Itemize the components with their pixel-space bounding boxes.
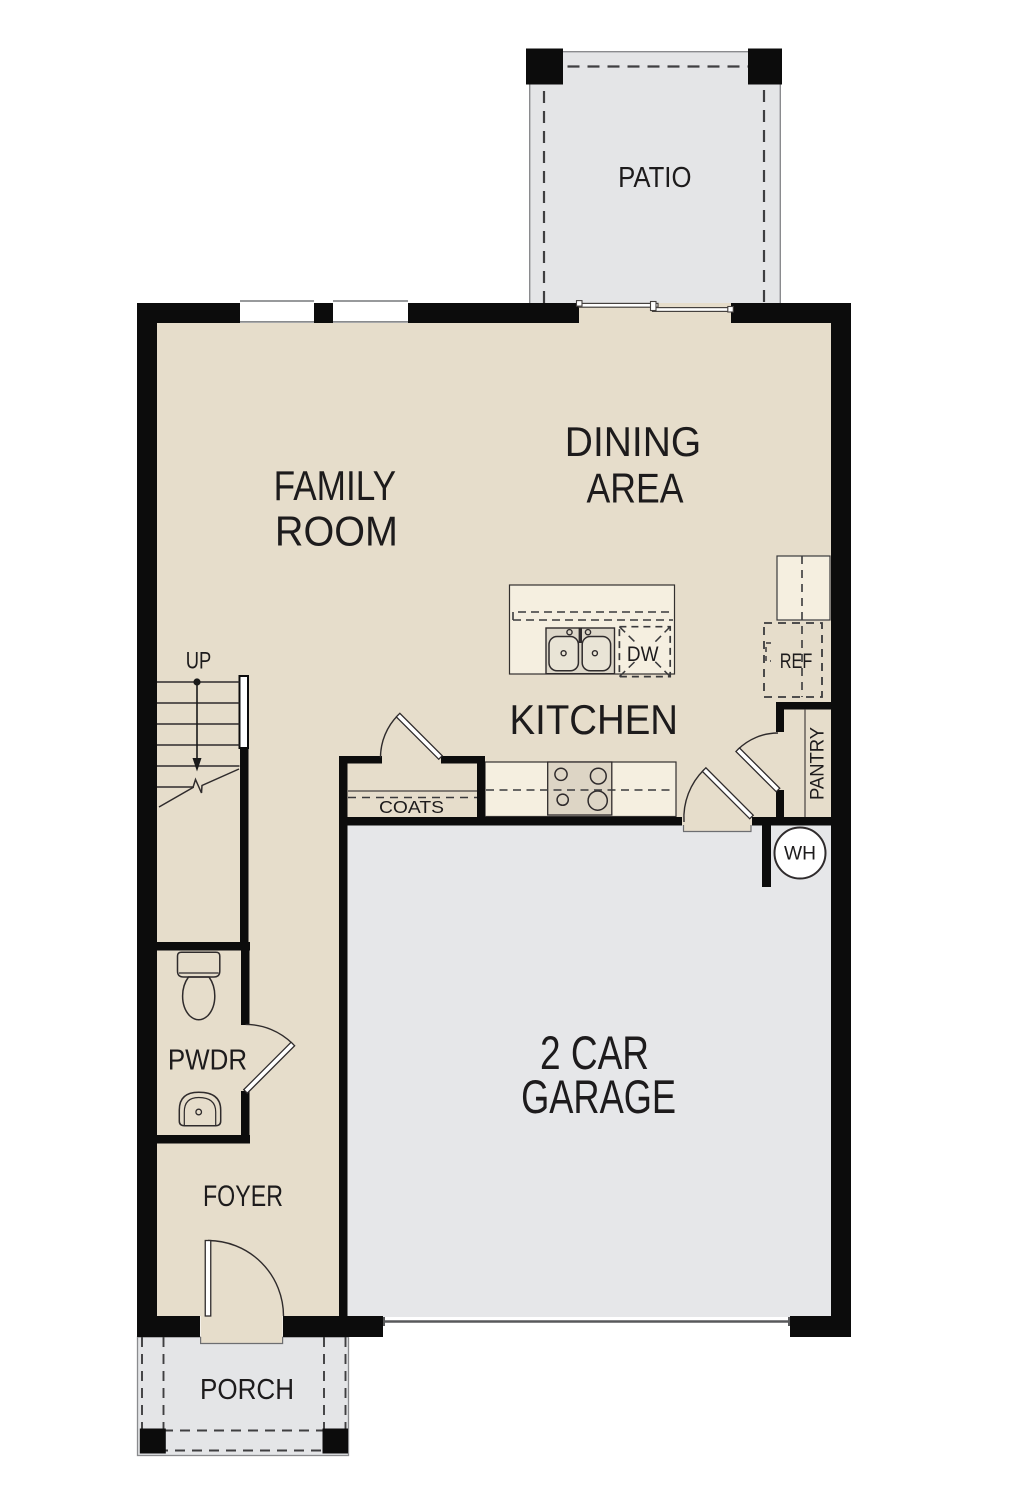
svg-text:DINING: DINING	[565, 418, 701, 465]
svg-text:PWDR: PWDR	[168, 1044, 247, 1076]
svg-text:WH: WH	[784, 844, 816, 865]
svg-text:DW: DW	[627, 643, 659, 666]
svg-text:FAMILY: FAMILY	[274, 462, 397, 509]
svg-text:FOYER: FOYER	[203, 1180, 283, 1213]
svg-text:PANTRY: PANTRY	[808, 727, 829, 800]
svg-text:UP: UP	[186, 648, 212, 675]
svg-text:PORCH: PORCH	[200, 1374, 294, 1406]
svg-text:COATS: COATS	[379, 797, 444, 817]
svg-text:GARAGE: GARAGE	[521, 1070, 676, 1123]
svg-text:REF: REF	[780, 650, 813, 673]
svg-text:AREA: AREA	[587, 464, 684, 511]
svg-text:PATIO: PATIO	[618, 162, 691, 194]
svg-text:ROOM: ROOM	[275, 507, 398, 554]
svg-text:KITCHEN: KITCHEN	[510, 696, 679, 743]
